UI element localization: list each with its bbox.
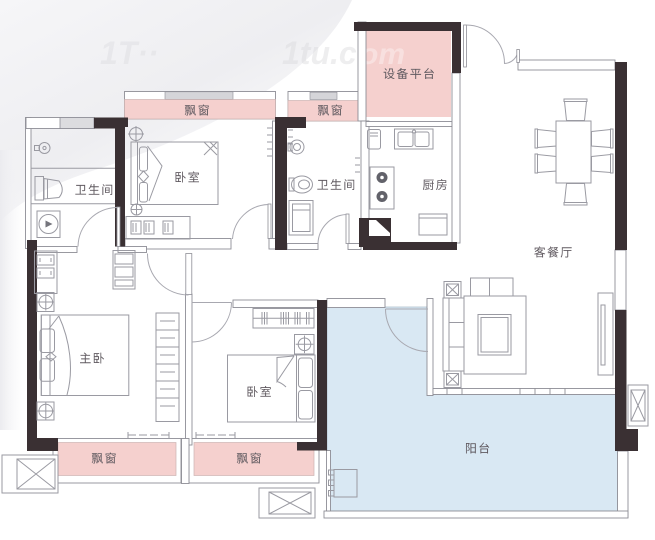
svg-text:1T··: 1T··: [100, 35, 159, 71]
svg-text:om: om: [360, 38, 405, 71]
svg-text:1tu.c: 1tu.c: [282, 35, 357, 71]
